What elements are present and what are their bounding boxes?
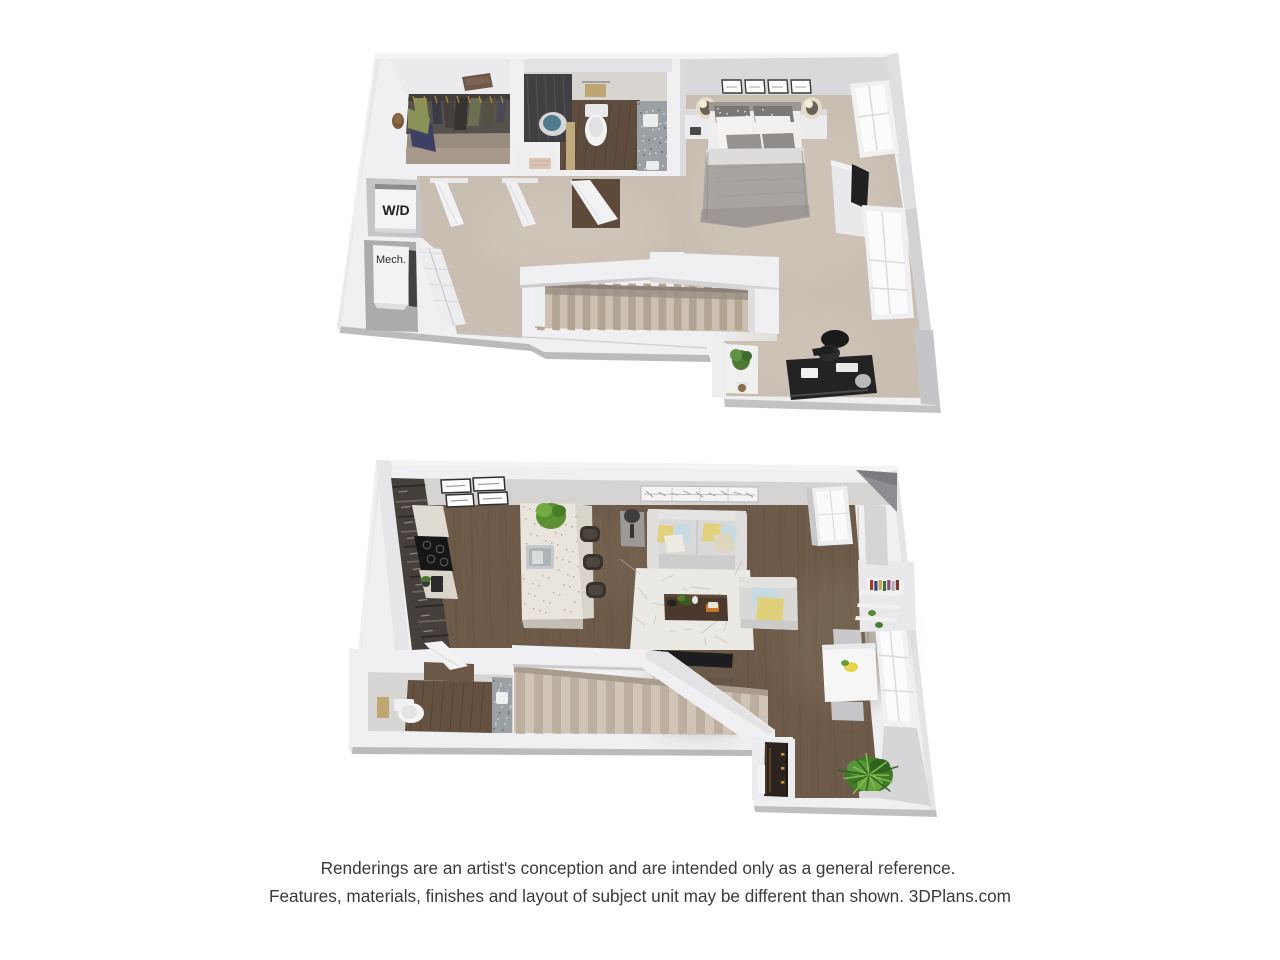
svg-text:Features, materials, finishes: Features, materials, finishes and layout… <box>269 886 1011 906</box>
svg-text:W/D: W/D <box>382 202 409 218</box>
svg-text:Renderings are an artist's con: Renderings are an artist's conception an… <box>321 858 956 878</box>
svg-text:Mech.: Mech. <box>376 254 406 266</box>
